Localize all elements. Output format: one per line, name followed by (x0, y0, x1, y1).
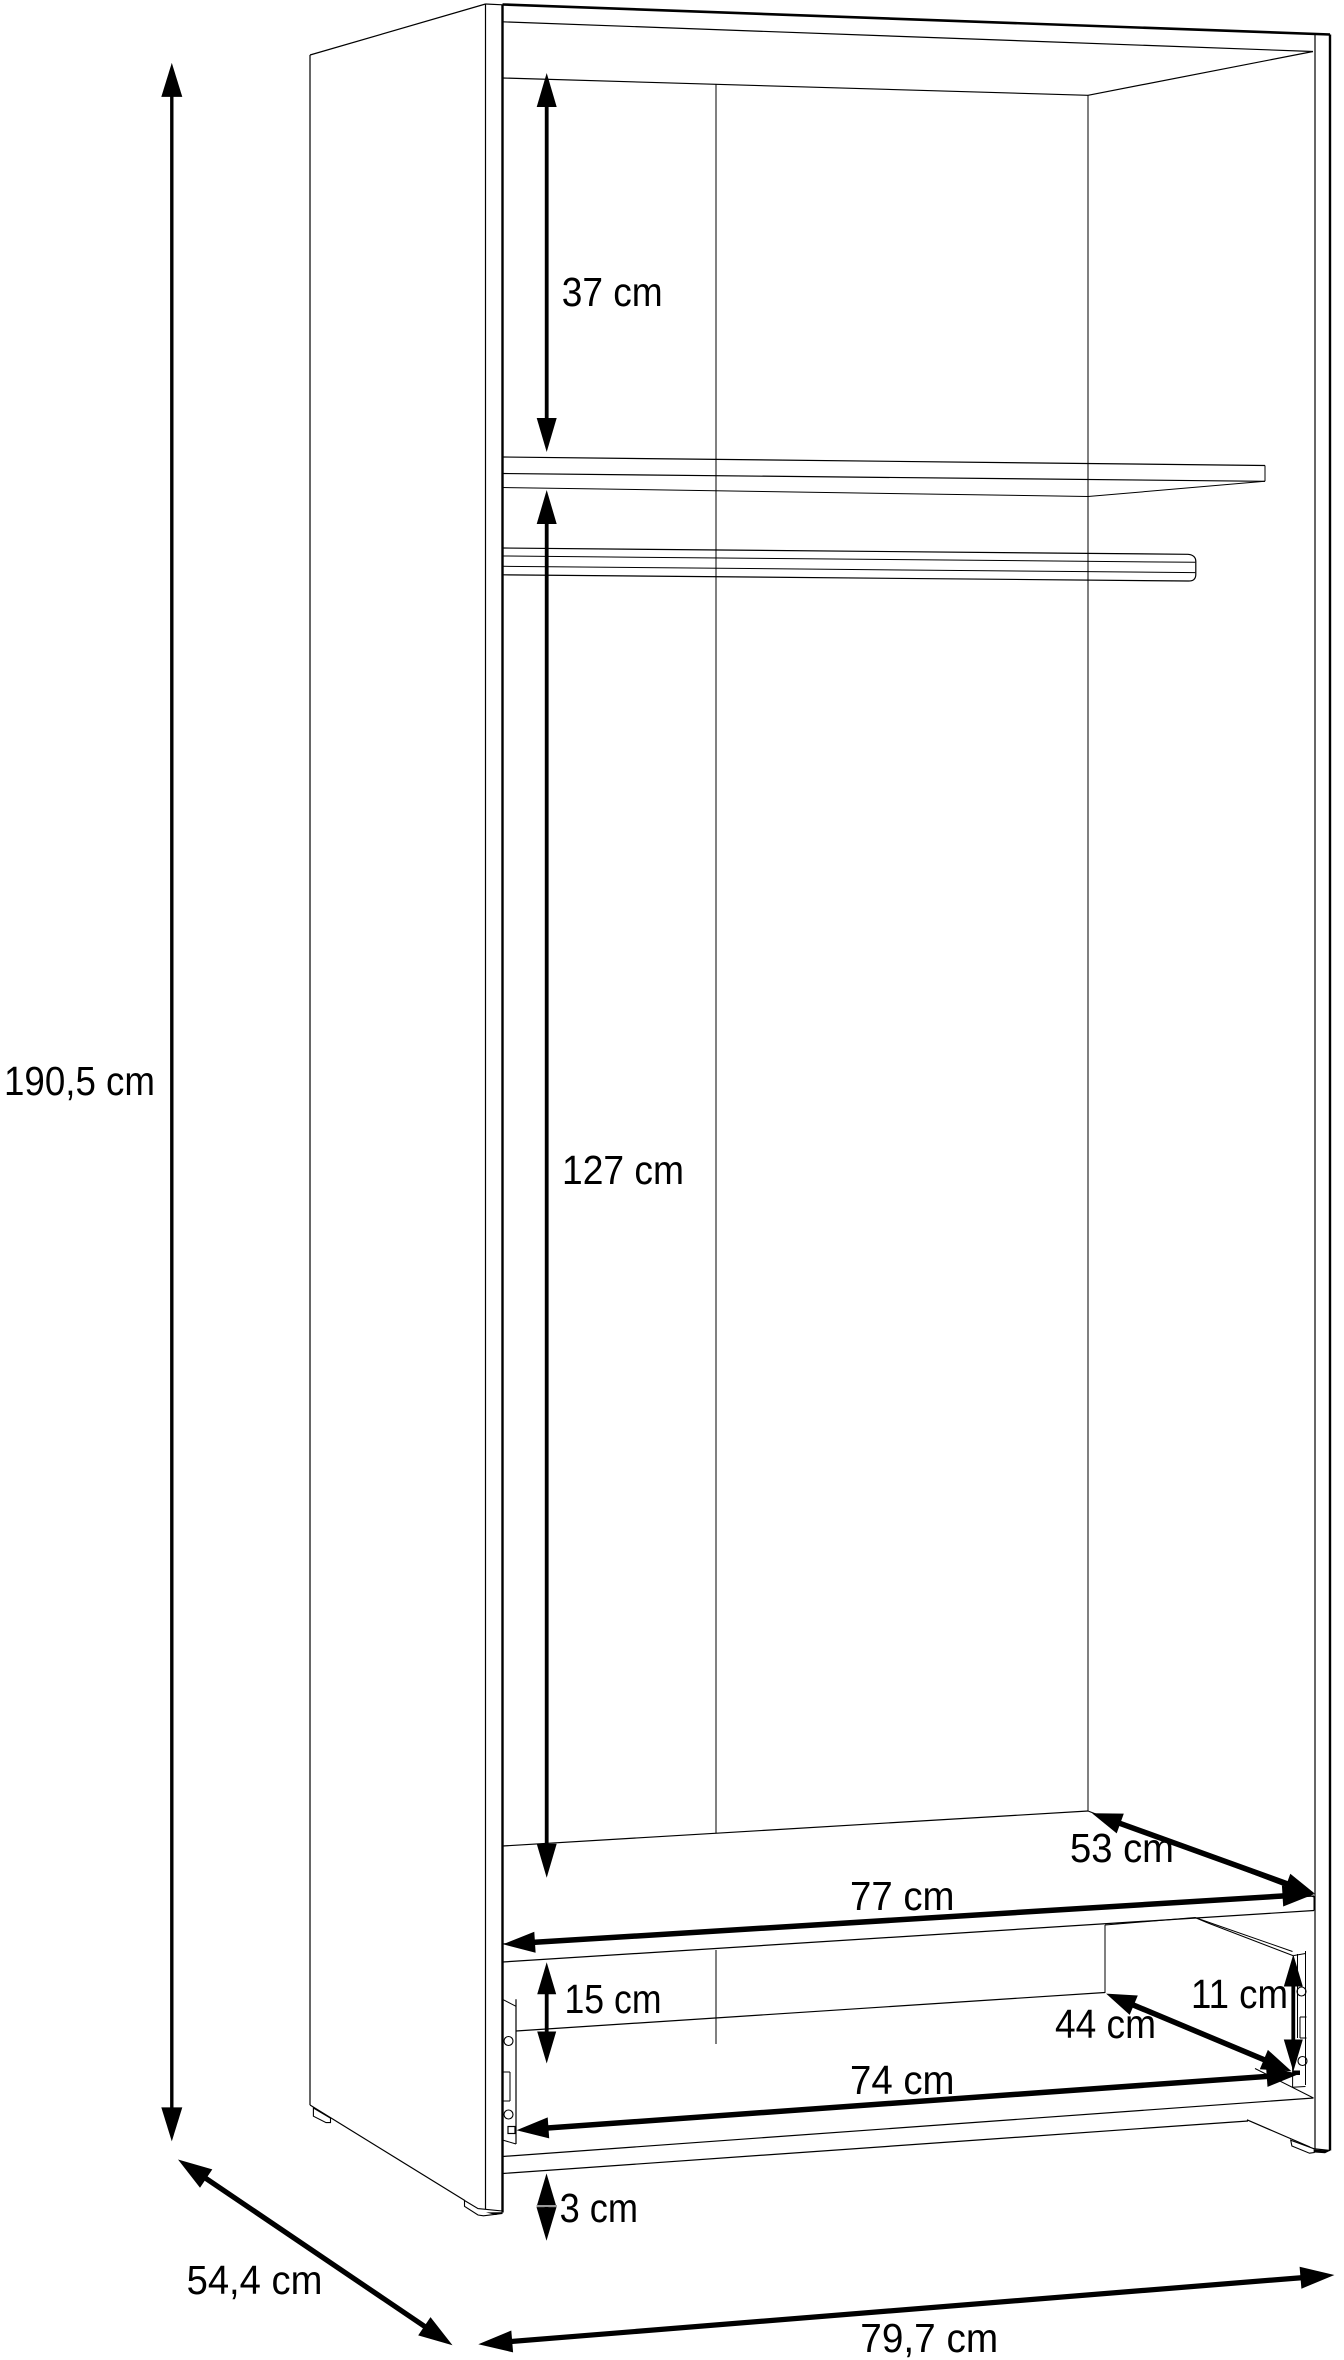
svg-text:3 cm: 3 cm (560, 2185, 638, 2231)
svg-text:74 cm: 74 cm (850, 2057, 955, 2103)
svg-text:11 cm: 11 cm (1191, 1971, 1288, 2017)
svg-text:77 cm: 77 cm (850, 1873, 955, 1919)
svg-text:53 cm: 53 cm (1070, 1825, 1174, 1871)
svg-text:79,7 cm: 79,7 cm (860, 2315, 998, 2360)
svg-text:54,4 cm: 54,4 cm (187, 2257, 323, 2303)
svg-text:127 cm: 127 cm (562, 1147, 684, 1193)
svg-text:190,5 cm: 190,5 cm (4, 1058, 155, 1104)
svg-text:44 cm: 44 cm (1055, 2001, 1156, 2047)
svg-text:37 cm: 37 cm (562, 269, 663, 315)
svg-text:15 cm: 15 cm (565, 1976, 662, 2022)
